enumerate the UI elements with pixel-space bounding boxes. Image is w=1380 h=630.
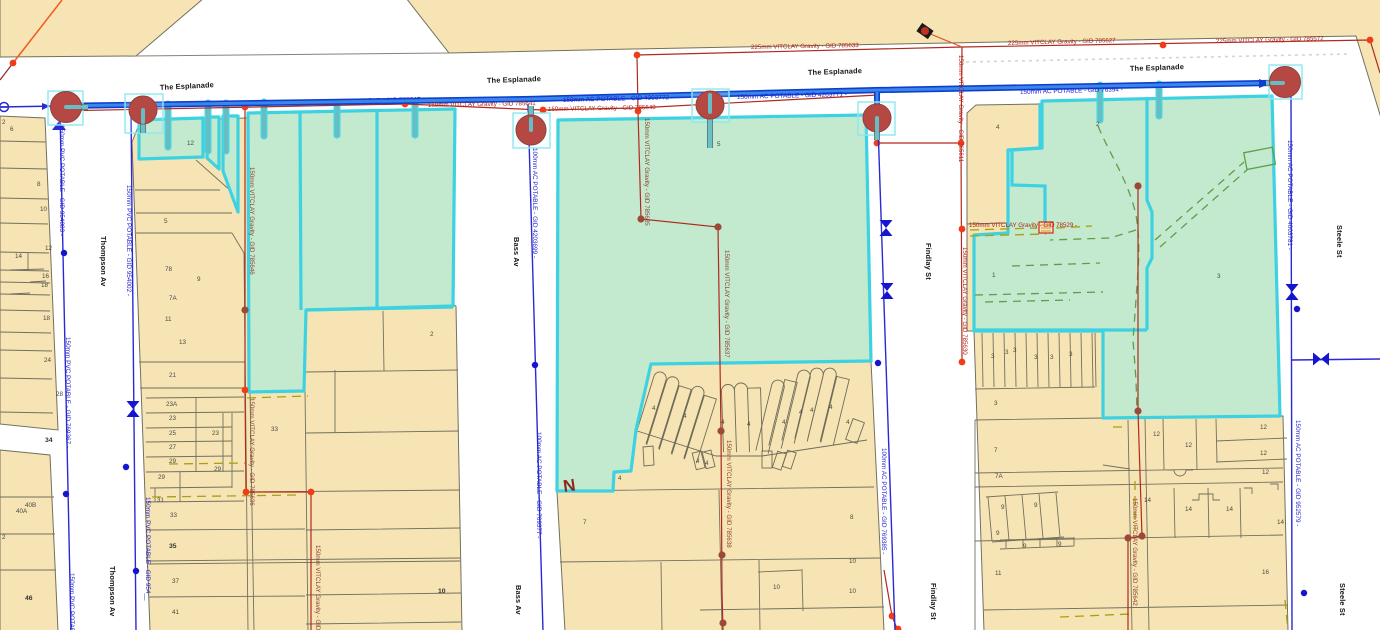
svg-text:5: 5 xyxy=(164,218,168,225)
svg-text:31: 31 xyxy=(157,497,165,504)
svg-text:150mm VITCLAY Gravity - GID 78: 150mm VITCLAY Gravity - GID 785646 xyxy=(248,167,255,275)
svg-text:11: 11 xyxy=(995,570,1002,577)
svg-text:The Esplanade: The Esplanade xyxy=(1130,62,1184,73)
svg-text:3: 3 xyxy=(1069,351,1073,358)
svg-text:3: 3 xyxy=(1034,354,1038,361)
svg-text:7A: 7A xyxy=(169,295,178,302)
svg-text:150mm VITCLAY Gravity - GID 78: 150mm VITCLAY Gravity - GID 785642 xyxy=(1131,498,1138,606)
svg-text:The Esplanade: The Esplanade xyxy=(808,66,862,77)
svg-text:33: 33 xyxy=(170,512,178,519)
svg-text:5: 5 xyxy=(717,141,721,148)
svg-text:4: 4 xyxy=(683,413,687,420)
svg-text:12: 12 xyxy=(1153,431,1161,438)
svg-text:6: 6 xyxy=(10,126,14,133)
svg-text:9: 9 xyxy=(1058,541,1062,548)
svg-text:16: 16 xyxy=(1262,569,1270,576)
svg-text:16: 16 xyxy=(42,273,50,280)
svg-text:150mm VITCLAY Gravity - GID 78: 150mm VITCLAY Gravity - GID 78529 - xyxy=(969,222,1077,229)
svg-text:9: 9 xyxy=(996,530,1000,537)
svg-text:150mm AC POTABLE - GID 4003781: 150mm AC POTABLE - GID 4003781 - xyxy=(1286,140,1293,250)
svg-text:N: N xyxy=(562,475,577,496)
svg-text:12: 12 xyxy=(1262,469,1270,476)
svg-text:37: 37 xyxy=(172,578,180,585)
svg-text:35: 35 xyxy=(169,543,177,550)
svg-text:4: 4 xyxy=(652,405,656,412)
svg-text:10: 10 xyxy=(849,588,857,595)
svg-text:7: 7 xyxy=(994,447,998,454)
svg-text:4: 4 xyxy=(810,407,814,414)
svg-text:28: 28 xyxy=(56,391,64,398)
svg-text:78: 78 xyxy=(165,266,173,273)
svg-text:2: 2 xyxy=(2,534,6,541)
svg-text:1: 1 xyxy=(992,272,996,279)
svg-text:2: 2 xyxy=(430,331,434,338)
svg-text:150mm PVC POTABLE - GID 954002: 150mm PVC POTABLE - GID 954002 - xyxy=(125,185,132,296)
svg-text:8: 8 xyxy=(37,181,41,188)
svg-text:29: 29 xyxy=(158,474,166,481)
svg-text:24: 24 xyxy=(44,357,52,364)
svg-text:150mm VITCLAY Gravity - GID 78: 150mm VITCLAY Gravity - GID 785639 xyxy=(314,545,321,630)
svg-text:12: 12 xyxy=(45,245,53,252)
svg-text:150mm VITCLAY Gravity - GID 76: 150mm VITCLAY Gravity - GID 765611 xyxy=(957,55,964,163)
svg-text:4: 4 xyxy=(996,124,1000,131)
svg-text:150mm PVC POTABLE - GID 769367: 150mm PVC POTABLE - GID 769367 - xyxy=(64,337,71,448)
svg-text:18: 18 xyxy=(43,315,51,322)
svg-text:10: 10 xyxy=(40,206,48,213)
svg-text:23: 23 xyxy=(212,430,220,437)
svg-text:18: 18 xyxy=(41,282,49,289)
svg-text:Findlay St: Findlay St xyxy=(929,583,938,620)
svg-text:100mm AC POTABLE - GID 4203699: 100mm AC POTABLE - GID 4203699 - xyxy=(531,148,538,258)
svg-text:21: 21 xyxy=(169,372,177,379)
svg-text:23A: 23A xyxy=(166,401,178,408)
svg-text:4: 4 xyxy=(721,419,725,426)
svg-text:14: 14 xyxy=(1226,506,1234,513)
svg-text:40A: 40A xyxy=(16,508,28,515)
svg-text:4: 4 xyxy=(799,409,803,416)
svg-text:34: 34 xyxy=(45,437,53,444)
svg-text:150mm VITCLAY Gravity - GID 78: 150mm VITCLAY Gravity - GID 785638 xyxy=(725,440,732,548)
svg-text:2: 2 xyxy=(2,119,6,126)
svg-text:4: 4 xyxy=(846,419,850,426)
svg-text:10: 10 xyxy=(773,584,781,591)
svg-text:14: 14 xyxy=(1144,497,1152,504)
svg-text:41: 41 xyxy=(172,609,180,616)
svg-text:33: 33 xyxy=(271,426,279,433)
svg-text:23: 23 xyxy=(169,415,177,422)
svg-text:3: 3 xyxy=(994,400,998,407)
svg-text:10: 10 xyxy=(849,558,857,565)
svg-text:3: 3 xyxy=(1217,273,1221,280)
svg-text:Bass Av: Bass Av xyxy=(512,237,521,267)
svg-text:27: 27 xyxy=(169,444,177,451)
svg-text:11: 11 xyxy=(165,316,172,323)
svg-text:4: 4 xyxy=(618,475,622,482)
svg-text:9: 9 xyxy=(1001,504,1005,511)
svg-text:Findlay St: Findlay St xyxy=(924,243,933,280)
svg-text:3: 3 xyxy=(1013,347,1017,354)
svg-text:12: 12 xyxy=(1260,424,1268,431)
svg-text:Steele St: Steele St xyxy=(1338,583,1347,616)
svg-text:9: 9 xyxy=(1034,502,1038,509)
svg-text:46: 46 xyxy=(25,595,33,602)
svg-text:14: 14 xyxy=(1185,506,1193,513)
svg-text:100mm AC POTABLE - GID 769377: 100mm AC POTABLE - GID 769377 - xyxy=(535,432,542,538)
svg-text:3: 3 xyxy=(1050,354,1054,361)
svg-text:7: 7 xyxy=(583,519,587,526)
svg-text:25: 25 xyxy=(169,430,177,437)
svg-text:150mm VITCLAY Gravity - GID 78: 150mm VITCLAY Gravity - GID 785635 xyxy=(643,118,650,226)
svg-text:150mm VITCLAY Gravity - GID 78: 150mm VITCLAY Gravity - GID 785637 xyxy=(723,250,730,358)
svg-text:12: 12 xyxy=(1260,450,1268,457)
svg-text:4: 4 xyxy=(782,419,786,426)
svg-text:13: 13 xyxy=(179,339,187,346)
svg-text:100mm AC POTABLE - GID 769385: 100mm AC POTABLE - GID 769385 - xyxy=(880,448,887,554)
svg-text:Bass Av: Bass Av xyxy=(514,585,523,615)
svg-text:10: 10 xyxy=(438,588,446,595)
svg-text:Thompson Av: Thompson Av xyxy=(108,566,117,617)
svg-text:150mm PVC POTABLE: 150mm PVC POTABLE xyxy=(68,573,75,630)
svg-text:14: 14 xyxy=(1277,519,1285,526)
svg-text:14: 14 xyxy=(15,253,23,260)
svg-text:12: 12 xyxy=(187,140,195,147)
svg-text:Thompson Av: Thompson Av xyxy=(99,236,108,287)
svg-text:4: 4 xyxy=(747,421,751,428)
svg-text:12: 12 xyxy=(1185,442,1193,449)
svg-text:4: 4 xyxy=(829,404,833,411)
svg-text:4: 4 xyxy=(696,458,700,465)
svg-text:29: 29 xyxy=(214,466,222,473)
svg-text:4: 4 xyxy=(705,460,709,467)
svg-text:150mm PVC POTABLE - GID 954083: 150mm PVC POTABLE - GID 954083 - xyxy=(58,125,65,236)
svg-text:3: 3 xyxy=(991,353,995,360)
svg-text:2: 2 xyxy=(1096,121,1100,128)
svg-text:7A: 7A xyxy=(995,473,1004,480)
svg-text:150mm VITCLAY Gravity - GID 78: 150mm VITCLAY Gravity - GID 785630 xyxy=(961,247,968,355)
svg-text:29: 29 xyxy=(169,458,177,465)
svg-text:Steele St: Steele St xyxy=(1335,225,1344,258)
svg-text:9: 9 xyxy=(1023,543,1027,550)
svg-text:9: 9 xyxy=(197,276,201,283)
svg-text:The Esplanade: The Esplanade xyxy=(487,74,541,85)
svg-text:3: 3 xyxy=(1005,349,1009,356)
svg-text:150mm PVC POTABLE - GID 954__: 150mm PVC POTABLE - GID 954__ xyxy=(144,497,151,601)
svg-text:150mm VITCLAY Gravity - GID 78: 150mm VITCLAY Gravity - GID 785636 xyxy=(248,398,255,506)
svg-text:8: 8 xyxy=(850,514,854,521)
svg-text:150mm AC POTABLE - GID 952579: 150mm AC POTABLE - GID 952579 - xyxy=(1294,420,1301,526)
